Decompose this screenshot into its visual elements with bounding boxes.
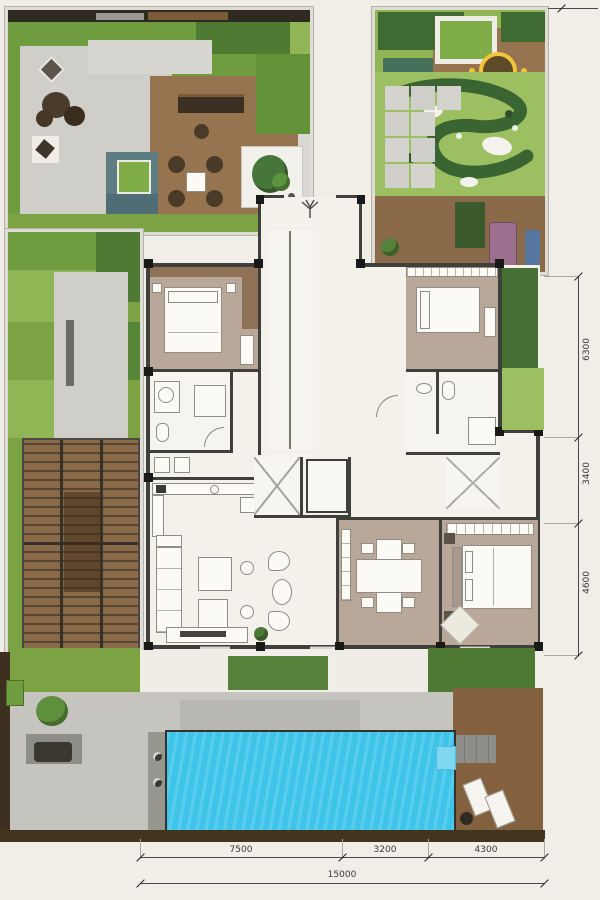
pool-step (436, 746, 456, 770)
corridor-wall-right (359, 195, 362, 267)
house (140, 195, 540, 653)
garden-top-band-wood (148, 12, 228, 20)
terrace-grill (34, 742, 72, 762)
dining-cabinet (341, 529, 351, 601)
rock-mid (64, 106, 85, 126)
swimming-pool (167, 732, 454, 834)
kitchen-stove (156, 485, 166, 493)
hedge-house-right (502, 268, 538, 368)
kitchen-counter-left (152, 495, 164, 537)
rock-pad-white (32, 136, 59, 163)
rock-white-3 (460, 177, 478, 187)
dining-table-horizontal (356, 559, 422, 593)
chair-2 (206, 156, 223, 173)
bed-ur-pillow (420, 291, 430, 329)
dining-chair-3 (361, 597, 374, 608)
bed-ul-pillow (168, 291, 218, 303)
step-stone-1 (385, 86, 409, 110)
bed-ul (164, 287, 222, 353)
deck-stool (194, 124, 209, 139)
sofa-armrest (156, 535, 182, 547)
coffee-table-1 (198, 557, 232, 591)
lounger-side-table (460, 812, 473, 825)
pouf-2 (240, 605, 254, 619)
bath-ul-shower (194, 385, 226, 417)
deck-bench (178, 94, 244, 113)
bed-br-pillow-2 (465, 579, 473, 601)
wall-v4 (336, 517, 339, 647)
dim-top-right-line (548, 8, 598, 9)
coffee-table-2 (198, 599, 228, 629)
pier-11 (534, 642, 543, 651)
side-table-oval (272, 579, 292, 605)
dim-right: 6300 3400 4600 (560, 276, 600, 658)
step-stone-7 (411, 138, 435, 162)
pier-14 (256, 195, 264, 204)
dim-right-line (578, 276, 579, 656)
armchair-2 (268, 611, 290, 631)
dim-bottom-total-label: 15000 (328, 870, 357, 880)
corridor-wall-left (258, 195, 261, 455)
paver-arm (88, 40, 212, 74)
nightstand-ul-left (152, 283, 162, 293)
bath-ul-sink (158, 387, 174, 403)
terrace-planter-small (6, 680, 24, 706)
rock-small (36, 110, 53, 127)
washer-1 (154, 457, 170, 473)
wall-v3 (436, 372, 439, 434)
bed-ur (416, 287, 480, 333)
stone-terrace-shade (180, 700, 360, 730)
dresser-ur (484, 307, 496, 337)
patio-slab-right (330, 650, 428, 696)
dim-right-ext-4 (544, 655, 578, 656)
pier-5 (144, 367, 153, 376)
rock-on-pad (35, 139, 55, 159)
bedroom-br-wardrobe (446, 523, 534, 535)
bed-br-pillow-1 (465, 551, 473, 573)
grass-right-patch (256, 54, 310, 134)
wall-h5 (406, 452, 500, 455)
pebble-3 (456, 133, 462, 139)
grass-house-right (502, 368, 544, 430)
pool-jet-1 (153, 752, 162, 761)
wall-v1 (230, 372, 233, 450)
dining-chair-4 (402, 597, 415, 608)
pergola-dark-core (64, 492, 100, 592)
dim-bottom: 7500 3200 4300 15000 (140, 845, 545, 895)
grass-band-left (8, 648, 140, 698)
bed-ul-foldline (168, 332, 218, 333)
bedroom-ul-wardrobe-right (242, 277, 258, 329)
tv-screen (180, 631, 226, 637)
stair-central-rails (254, 457, 300, 515)
step-stone-5 (411, 112, 435, 136)
step-stone-9 (411, 164, 435, 188)
pergola-beam-v2 (100, 440, 103, 652)
washer-2 (174, 457, 190, 473)
dim-right-label-3: 4600 (582, 571, 592, 594)
wall-h2 (150, 450, 233, 453)
wall-v2 (300, 457, 303, 517)
dim-right-ext-2 (544, 437, 578, 438)
bed-br-foldline (493, 548, 494, 606)
path-post (66, 320, 74, 386)
sofa-body (156, 547, 182, 633)
pier-6 (144, 473, 153, 482)
wall-h3 (150, 477, 260, 480)
pier-8 (256, 642, 265, 651)
dim-bottom-line-2 (140, 883, 545, 884)
dresser-ul (240, 335, 254, 365)
living-plant (254, 627, 268, 641)
garden-top-band-gray (96, 13, 144, 20)
bath-ul-toilet (156, 423, 169, 442)
step-stone-2 (411, 86, 435, 110)
elevator (306, 459, 348, 513)
dim-right-label-2: 3400 (582, 462, 592, 485)
step-stone-3 (437, 86, 461, 110)
dim-bottom-label-3: 4300 (475, 845, 498, 855)
pergola-beam-v1 (60, 440, 63, 652)
hedge-tr (501, 12, 545, 42)
wall-v2b (348, 457, 351, 517)
pier-1 (144, 259, 153, 268)
kitchen-sink (210, 485, 219, 494)
bath-ur-toilet (442, 381, 455, 400)
step-stone-6 (385, 138, 409, 162)
floor-plan-canvas: 6300 3400 4600 7500 3200 4300 15000 (0, 0, 600, 900)
garden-left-strip (8, 232, 140, 700)
pouf-1 (240, 561, 254, 575)
teal-planter-grass (117, 160, 151, 194)
bedroom-ur-wardrobe (406, 267, 498, 277)
bed-br-headboard (452, 547, 462, 607)
kitchen-counter-top (152, 483, 258, 495)
pier-2 (254, 259, 263, 268)
bath-ur-shower (468, 417, 496, 445)
dining-chair-2 (402, 543, 415, 554)
bed-br (462, 545, 532, 609)
nightstand-br-top (444, 533, 455, 544)
tree-canopy-small (272, 173, 290, 191)
shrub-2 (505, 110, 513, 118)
dim-bottom-label-1: 7500 (230, 845, 253, 855)
stair-right-rails (446, 457, 500, 509)
pier-4 (495, 259, 504, 268)
entry-tree-symbol (298, 199, 322, 219)
pool-jet-2 (153, 778, 162, 787)
bedroom-ul-wardrobe-top (150, 267, 258, 277)
dim-right-ext-3 (544, 523, 578, 524)
nightstand-ul-right (226, 283, 236, 293)
dim-right-label-1: 6300 (582, 338, 592, 361)
dim-right-ext-1 (544, 276, 578, 277)
door-slider-1 (200, 646, 230, 649)
terrace-tree (36, 696, 68, 726)
chair-1 (168, 156, 185, 173)
dining-chair-1 (361, 543, 374, 554)
hedge-terrace-mid (228, 656, 328, 690)
dim-bottom-label-2: 3200 (374, 845, 397, 855)
pergola (22, 438, 140, 654)
patio-slab-left (140, 650, 228, 697)
deck-table (186, 172, 206, 192)
armchair-1 (268, 551, 290, 571)
pebble-2 (512, 125, 518, 131)
retaining-bottom (0, 830, 545, 842)
pier-15 (357, 195, 365, 204)
step-stone-8 (385, 164, 409, 188)
pier-3 (356, 259, 365, 268)
entry-stair-rail (289, 231, 291, 449)
step-stone-4 (385, 112, 409, 136)
bath-ur-sink (416, 383, 432, 394)
